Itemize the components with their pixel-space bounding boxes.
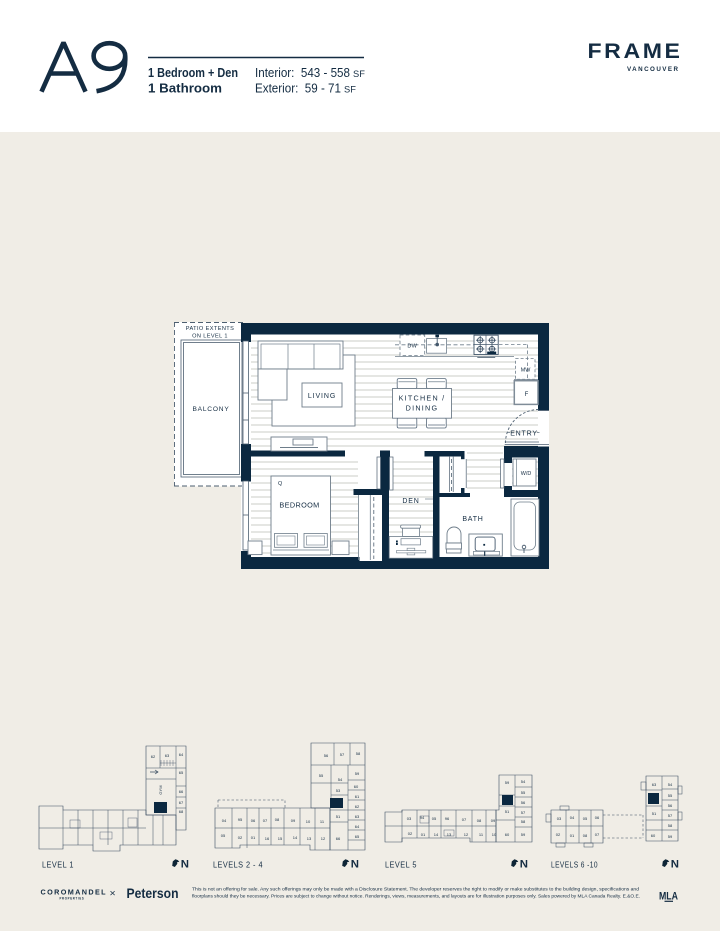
svg-text:PATIO EXTENTS: PATIO EXTENTS [186, 326, 235, 332]
svg-text:ON LEVEL 1: ON LEVEL 1 [192, 334, 228, 340]
svg-text:08: 08 [477, 818, 482, 823]
svg-text:1 Bathroom: 1 Bathroom [148, 81, 222, 95]
svg-text:54: 54 [668, 782, 673, 787]
svg-text:63: 63 [355, 814, 360, 819]
svg-text:51: 51 [652, 811, 657, 816]
svg-text:57: 57 [521, 810, 526, 815]
svg-text:56: 56 [668, 803, 673, 808]
svg-text:07: 07 [462, 817, 467, 822]
svg-text:1 Bedroom + Den: 1 Bedroom + Den [148, 66, 238, 80]
svg-text:09: 09 [491, 818, 496, 823]
svg-text:95: 95 [238, 817, 243, 822]
svg-text:09: 09 [291, 818, 296, 823]
svg-text:04: 04 [570, 815, 575, 820]
svg-text:W/D: W/D [521, 471, 532, 477]
svg-text:08: 08 [583, 833, 588, 838]
svg-text:DINING: DINING [406, 404, 439, 413]
svg-text:N: N [671, 859, 679, 871]
svg-text:02: 02 [556, 832, 561, 837]
svg-text:01: 01 [570, 833, 575, 838]
svg-text:66: 66 [179, 789, 184, 794]
svg-text:DEN: DEN [402, 498, 419, 505]
svg-text:59: 59 [505, 780, 510, 785]
svg-text:13: 13 [307, 836, 312, 841]
svg-text:63: 63 [652, 782, 657, 787]
svg-text:58: 58 [521, 819, 526, 824]
svg-text:COROMANDEL: COROMANDEL [41, 887, 108, 896]
svg-text:08: 08 [275, 817, 280, 822]
svg-text:DW: DW [407, 344, 417, 350]
svg-text:94: 94 [420, 815, 425, 820]
svg-text:55: 55 [521, 790, 526, 795]
svg-text:11: 11 [320, 819, 325, 824]
svg-text:68: 68 [179, 809, 184, 814]
svg-text:14: 14 [293, 835, 298, 840]
svg-text:57: 57 [668, 813, 673, 818]
svg-text:05: 05 [583, 816, 588, 821]
svg-text:59: 59 [521, 832, 526, 837]
svg-text:07: 07 [263, 818, 268, 823]
svg-text:MW: MW [521, 368, 531, 374]
svg-text:N: N [520, 859, 528, 871]
svg-text:05: 05 [432, 816, 437, 821]
svg-text:FRAME: FRAME [588, 39, 683, 63]
svg-text:55: 55 [319, 773, 324, 778]
svg-text:59: 59 [668, 834, 673, 839]
svg-text:N: N [181, 859, 189, 871]
svg-text:LEVEL 5: LEVEL 5 [385, 861, 417, 870]
svg-text:06: 06 [595, 815, 600, 820]
svg-text:13: 13 [447, 832, 452, 837]
svg-text:53: 53 [336, 788, 341, 793]
svg-text:MLA: MLA [659, 890, 678, 902]
svg-text:12: 12 [464, 832, 469, 837]
svg-text:N: N [351, 859, 359, 871]
svg-text:Q: Q [278, 481, 282, 487]
svg-text:07: 07 [595, 832, 600, 837]
svg-text:14: 14 [434, 832, 439, 837]
svg-text:KITCHEN /: KITCHEN / [399, 394, 446, 403]
svg-text:60: 60 [505, 832, 510, 837]
svg-text:PROPERTIES: PROPERTIES [60, 896, 85, 900]
svg-text:SF: SF [353, 69, 365, 79]
svg-text:06: 06 [251, 818, 256, 823]
svg-text:65: 65 [355, 834, 360, 839]
svg-text:15: 15 [278, 836, 283, 841]
svg-text:03: 03 [407, 816, 412, 821]
svg-text:01: 01 [251, 835, 256, 840]
svg-text:Peterson: Peterson [127, 885, 179, 901]
svg-text:66: 66 [336, 836, 341, 841]
svg-text:LEVELS 2 - 4: LEVELS 2 - 4 [213, 861, 263, 870]
svg-text:62: 62 [355, 804, 360, 809]
svg-text:12: 12 [321, 836, 326, 841]
svg-text:60: 60 [651, 833, 656, 838]
svg-text:64: 64 [355, 824, 360, 829]
svg-text:LIVING: LIVING [308, 393, 336, 400]
svg-text:61: 61 [355, 794, 360, 799]
svg-text:03: 03 [557, 816, 562, 821]
svg-text:LEVEL 1: LEVEL 1 [42, 861, 74, 870]
svg-text:02: 02 [238, 835, 243, 840]
svg-text:51: 51 [336, 814, 341, 819]
svg-text:SF: SF [344, 84, 356, 94]
svg-text:floorplans should they be nece: floorplans should they be necessary. Pri… [192, 894, 640, 900]
svg-text:BATH: BATH [462, 516, 483, 523]
svg-text:VANCOUVER: VANCOUVER [627, 66, 680, 73]
svg-text:16: 16 [265, 836, 270, 841]
svg-text:BEDROOM: BEDROOM [279, 501, 319, 510]
svg-text:96: 96 [445, 816, 450, 821]
svg-text:02: 02 [408, 831, 413, 836]
svg-text:51: 51 [505, 809, 510, 814]
svg-text:55: 55 [668, 793, 673, 798]
svg-text:58: 58 [356, 751, 361, 756]
svg-text:62: 62 [151, 754, 156, 759]
svg-text:67: 67 [179, 800, 184, 805]
svg-text:58: 58 [668, 823, 673, 828]
svg-text:59: 59 [355, 771, 360, 776]
svg-text:This is not an offering for sa: This is not an offering for sale. Any su… [192, 887, 639, 893]
svg-text:01: 01 [421, 832, 426, 837]
svg-text:11: 11 [479, 832, 484, 837]
svg-text:60: 60 [354, 784, 359, 789]
svg-text:GYM: GYM [158, 785, 163, 794]
svg-text:56: 56 [324, 753, 329, 758]
svg-text:LEVELS 6 -10: LEVELS 6 -10 [551, 861, 598, 870]
svg-text:BALCONY: BALCONY [192, 406, 229, 413]
svg-text:54: 54 [521, 779, 526, 784]
svg-text:10: 10 [306, 819, 311, 824]
svg-text:54: 54 [338, 777, 343, 782]
svg-text:04: 04 [222, 818, 227, 823]
svg-text:56: 56 [521, 800, 526, 805]
svg-text:63: 63 [165, 753, 170, 758]
svg-text:05: 05 [221, 833, 226, 838]
svg-text:65: 65 [179, 770, 184, 775]
svg-text:ENTRY: ENTRY [510, 431, 538, 438]
svg-text:×: × [110, 888, 116, 900]
svg-text:64: 64 [179, 752, 184, 757]
svg-text:Exterior: 59 - 71: Exterior: 59 - 71 [255, 81, 341, 95]
svg-text:F: F [525, 392, 529, 398]
svg-text:10: 10 [492, 832, 497, 837]
svg-text:Interior: 543 - 558: Interior: 543 - 558 [255, 66, 350, 80]
svg-text:57: 57 [340, 752, 345, 757]
